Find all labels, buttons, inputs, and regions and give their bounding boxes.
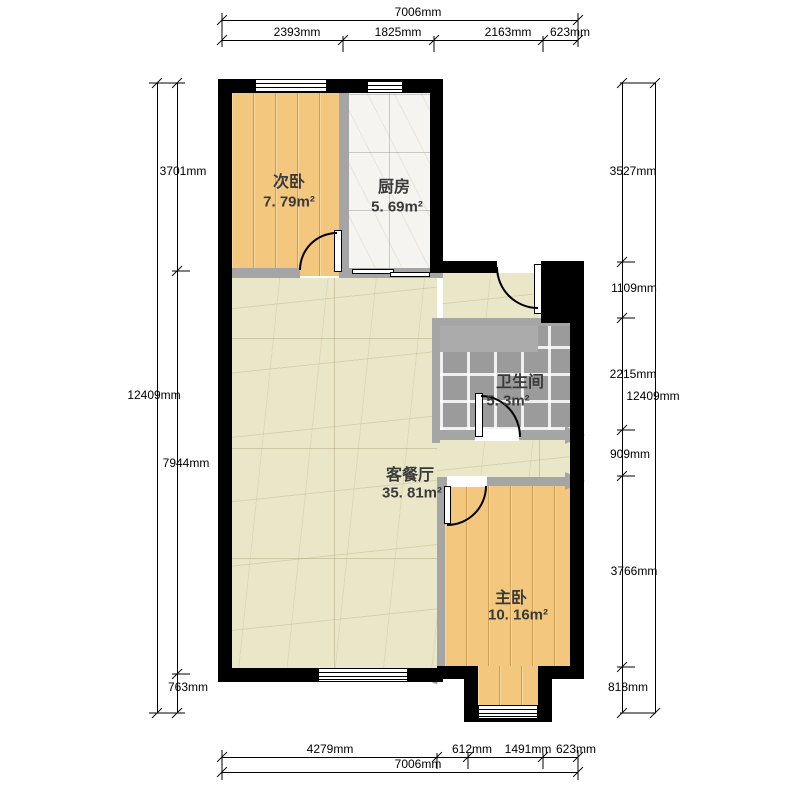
dim-bottom-seg-3: 623mm: [556, 742, 596, 756]
label-living-area: 35. 81m²: [382, 485, 442, 502]
kitchen-slide-leaf-1[interactable]: [352, 269, 394, 274]
dim-left-seg-0: 3701mm: [160, 164, 207, 178]
dim-right-total: 12409mm: [626, 389, 679, 403]
dim-bottom-seg-2: 1491mm: [505, 742, 552, 756]
label-kitchen-name: 厨房: [378, 173, 410, 197]
dim-right-seg-4: 3766mm: [611, 564, 658, 578]
label-master-name: 主卧: [495, 584, 527, 608]
dim-top-seg-3: 623mm: [550, 25, 590, 39]
dim-ext: [620, 713, 656, 714]
label-master-area: 10. 16m²: [488, 607, 548, 624]
wall-top: [218, 79, 443, 93]
dim-ext: [222, 750, 223, 780]
dim-left-seg-2: 763mm: [168, 680, 208, 694]
dim-ext: [617, 667, 635, 668]
label-bathroom-name: 卫生间: [496, 368, 544, 392]
bathroom-shower-block: [440, 326, 538, 352]
dim-ext: [222, 13, 223, 47]
dim-top-total: 7006mm: [395, 5, 442, 19]
wall-master-bottom-left: [437, 666, 466, 679]
dim-top-seg-0: 2393mm: [274, 25, 321, 39]
dim-ext: [172, 271, 190, 272]
dim-ext: [343, 36, 344, 52]
dim-right-seg-1: 1109mm: [611, 281, 657, 295]
window-kitchen[interactable]: [367, 81, 403, 93]
dim-top-seg-line: [222, 40, 578, 41]
window-bay[interactable]: [478, 705, 538, 719]
dim-ext: [620, 83, 656, 84]
dim-ext: [617, 476, 635, 477]
dim-ext: [149, 83, 185, 84]
dim-right-seg-2: 2215mm: [610, 367, 657, 381]
floor-corridor[interactable]: [437, 440, 570, 477]
label-living-name: 客餐厅: [386, 461, 434, 485]
dim-ext: [149, 713, 185, 714]
floorplan-canvas: 次卧 7. 79m² 厨房 5. 69m² 卫生间 5. 3m² 客餐厅 35.…: [0, 0, 800, 800]
dim-ext: [617, 318, 635, 319]
label-bathroom-area: 5. 3m²: [486, 393, 529, 410]
dim-ext: [434, 36, 435, 52]
dim-right-seg-3: 909mm: [610, 447, 650, 461]
wall-master-bottom-right: [551, 666, 584, 679]
dim-right-seg-0: 3527mm: [610, 164, 657, 178]
wall-left: [218, 79, 232, 682]
dim-bottom-total-line: [222, 772, 578, 773]
label-bedroom2-area: 7. 79m²: [263, 194, 315, 211]
dim-right-seg-5: 818mm: [608, 680, 648, 694]
wall-kitchen-right: [430, 79, 443, 273]
wall-right: [570, 261, 584, 679]
window-bedroom2[interactable]: [255, 79, 327, 92]
label-bedroom2-name: 次卧: [273, 168, 305, 192]
dim-top-seg-1: 1825mm: [375, 25, 422, 39]
dim-ext: [617, 262, 635, 263]
dim-top-total-line: [222, 20, 578, 21]
dim-top-seg-2: 2163mm: [485, 25, 532, 39]
wall-bedroom2-bottom: [232, 268, 300, 278]
dim-bottom-seg-1: 612mm: [452, 742, 492, 756]
floor-bay[interactable]: [478, 666, 538, 706]
wall-entry: [443, 261, 497, 273]
dim-left-seg-1: 7944mm: [163, 456, 210, 470]
dim-bottom-total: 7006mm: [395, 757, 442, 771]
window-living[interactable]: [318, 668, 408, 682]
kitchen-slide-leaf-2[interactable]: [390, 272, 430, 277]
dim-ext: [617, 430, 635, 431]
wall-entry-stub: [541, 261, 570, 323]
dim-left-total: 12409mm: [127, 388, 180, 402]
wall-bath-left: [432, 318, 440, 443]
label-kitchen-area: 5. 69m²: [371, 199, 423, 216]
dim-bottom-seg-0: 4279mm: [307, 742, 354, 756]
dim-ext: [543, 36, 544, 52]
dim-ext: [172, 674, 190, 675]
